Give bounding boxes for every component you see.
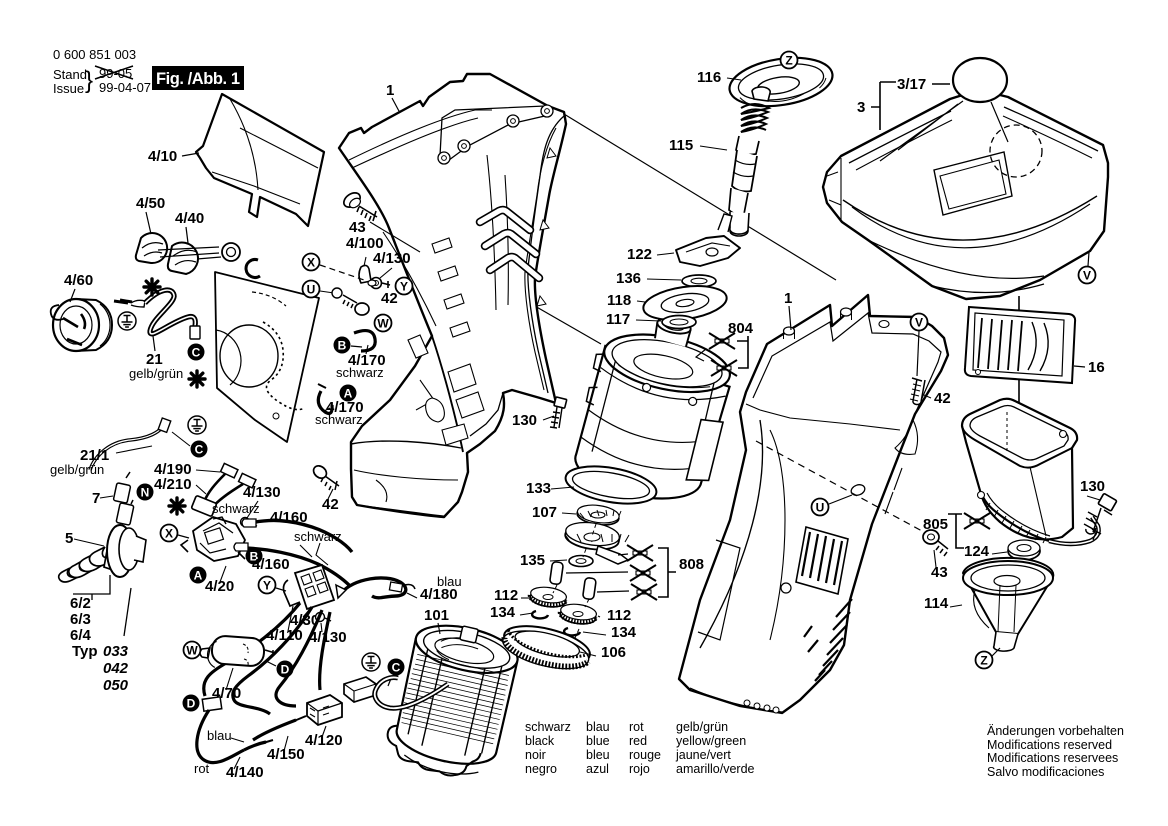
svg-text:Salvo modificaciones: Salvo modificaciones <box>987 765 1104 779</box>
svg-text:112: 112 <box>607 607 631 624</box>
svg-text:42: 42 <box>381 290 398 307</box>
svg-text:A: A <box>194 569 203 583</box>
svg-text:4/40: 4/40 <box>175 210 204 227</box>
svg-text:4/130: 4/130 <box>373 250 411 267</box>
svg-text:Y: Y <box>263 579 271 593</box>
svg-text:Typ: Typ <box>72 643 98 660</box>
svg-text:0 600 851 003: 0 600 851 003 <box>53 47 136 62</box>
svg-text:gelb/grün: gelb/grün <box>676 720 728 734</box>
svg-text:Stand: Stand <box>53 67 87 82</box>
svg-text:X: X <box>165 527 173 541</box>
svg-text:Fig. /Abb. 1: Fig. /Abb. 1 <box>156 70 240 88</box>
svg-text:4/160: 4/160 <box>252 556 290 573</box>
svg-text:gelb/grün: gelb/grün <box>50 462 104 477</box>
svg-text:114: 114 <box>924 595 949 612</box>
svg-text:4/210: 4/210 <box>154 476 192 493</box>
svg-text:schwarz: schwarz <box>315 412 363 427</box>
svg-text:V: V <box>1083 269 1091 283</box>
svg-text:U: U <box>816 501 825 515</box>
svg-text:133: 133 <box>526 480 551 497</box>
svg-text:4/60: 4/60 <box>64 272 93 289</box>
svg-text:4/130: 4/130 <box>309 629 347 646</box>
svg-text:804: 804 <box>728 320 754 337</box>
svg-text:4/160: 4/160 <box>270 509 308 526</box>
svg-text:3/17: 3/17 <box>897 76 926 93</box>
svg-text:U: U <box>307 283 316 297</box>
svg-text:C: C <box>192 346 201 360</box>
svg-text:6/3: 6/3 <box>70 611 91 628</box>
svg-text:4/140: 4/140 <box>226 764 264 781</box>
svg-text:azul: azul <box>586 762 609 776</box>
svg-text:134: 134 <box>611 624 637 641</box>
svg-text:107: 107 <box>532 504 557 521</box>
svg-text:Y: Y <box>400 280 408 294</box>
svg-text:C: C <box>392 661 401 675</box>
svg-text:X: X <box>307 256 315 270</box>
svg-text:6/2: 6/2 <box>70 595 91 612</box>
svg-text:117: 117 <box>606 311 630 328</box>
svg-text:43: 43 <box>349 219 366 236</box>
svg-text:1: 1 <box>784 290 792 307</box>
svg-text:yellow/green: yellow/green <box>676 734 746 748</box>
svg-text:43: 43 <box>931 564 948 581</box>
svg-text:W: W <box>377 317 389 331</box>
svg-text:C: C <box>195 443 204 457</box>
svg-text:B: B <box>338 339 347 353</box>
svg-text:1: 1 <box>386 82 394 99</box>
svg-text:116: 116 <box>697 69 721 86</box>
svg-text:Issue: Issue <box>53 81 84 96</box>
svg-text:5: 5 <box>65 530 73 547</box>
svg-text:4/10: 4/10 <box>148 148 177 165</box>
svg-text:4/150: 4/150 <box>267 746 305 763</box>
svg-text:Z: Z <box>980 654 987 668</box>
svg-text:schwarz: schwarz <box>336 365 384 380</box>
svg-text:033: 033 <box>103 643 129 660</box>
svg-text:Modifications reserved: Modifications reserved <box>987 738 1112 752</box>
svg-text:rojo: rojo <box>629 762 650 776</box>
svg-text:V: V <box>915 316 923 330</box>
svg-text:4/20: 4/20 <box>205 578 234 595</box>
svg-text:Modifications reservees: Modifications reservees <box>987 751 1118 765</box>
svg-text:Z: Z <box>785 54 792 68</box>
svg-text:schwarz: schwarz <box>294 529 342 544</box>
svg-text:16: 16 <box>1088 359 1105 376</box>
svg-text:4/130: 4/130 <box>243 484 281 501</box>
svg-text:amarillo/verde: amarillo/verde <box>676 762 755 776</box>
svg-text:6/4: 6/4 <box>70 627 92 644</box>
svg-text:042: 042 <box>103 660 129 677</box>
svg-text:schwarz: schwarz <box>525 720 571 734</box>
svg-text:noir: noir <box>525 748 546 762</box>
svg-text:3: 3 <box>857 99 865 116</box>
svg-text:Änderungen vorbehalten: Änderungen vorbehalten <box>987 724 1124 738</box>
svg-text:D: D <box>281 663 290 677</box>
svg-text:rouge: rouge <box>629 748 661 762</box>
svg-text:115: 115 <box>669 137 693 154</box>
svg-text:112: 112 <box>494 587 518 604</box>
svg-text:4/50: 4/50 <box>136 195 165 212</box>
svg-text:99-04-07: 99-04-07 <box>99 80 151 95</box>
svg-text:130: 130 <box>1080 478 1105 495</box>
svg-text:rot: rot <box>194 761 210 776</box>
svg-text:bleu: bleu <box>586 748 610 762</box>
svg-text:42: 42 <box>322 496 339 513</box>
svg-text:805: 805 <box>923 516 948 533</box>
svg-text:134: 134 <box>490 604 516 621</box>
svg-text:118: 118 <box>607 292 631 309</box>
svg-text:42: 42 <box>934 390 951 407</box>
svg-text:135: 135 <box>520 552 545 569</box>
svg-text:N: N <box>141 486 150 500</box>
svg-text:4/120: 4/120 <box>305 732 343 749</box>
svg-text:808: 808 <box>679 556 704 573</box>
svg-text:D: D <box>187 697 196 711</box>
svg-text:negro: negro <box>525 762 557 776</box>
svg-text:blau: blau <box>586 720 610 734</box>
svg-text:gelb/grün: gelb/grün <box>129 366 183 381</box>
svg-text:106: 106 <box>601 644 626 661</box>
svg-text:}: } <box>85 67 93 94</box>
svg-text:blau: blau <box>207 728 232 743</box>
svg-text:130: 130 <box>512 412 537 429</box>
svg-text:124: 124 <box>964 543 990 560</box>
svg-text:blue: blue <box>586 734 610 748</box>
svg-text:122: 122 <box>627 246 652 263</box>
svg-text:136: 136 <box>616 270 641 287</box>
svg-text:4/180: 4/180 <box>420 586 458 603</box>
svg-text:rot: rot <box>629 720 644 734</box>
svg-text:red: red <box>629 734 647 748</box>
svg-text:101: 101 <box>424 607 449 624</box>
svg-text:W: W <box>186 644 198 658</box>
svg-text:jaune/vert: jaune/vert <box>675 748 731 762</box>
svg-text:7: 7 <box>92 490 100 507</box>
svg-text:050: 050 <box>103 677 129 694</box>
svg-text:black: black <box>525 734 555 748</box>
